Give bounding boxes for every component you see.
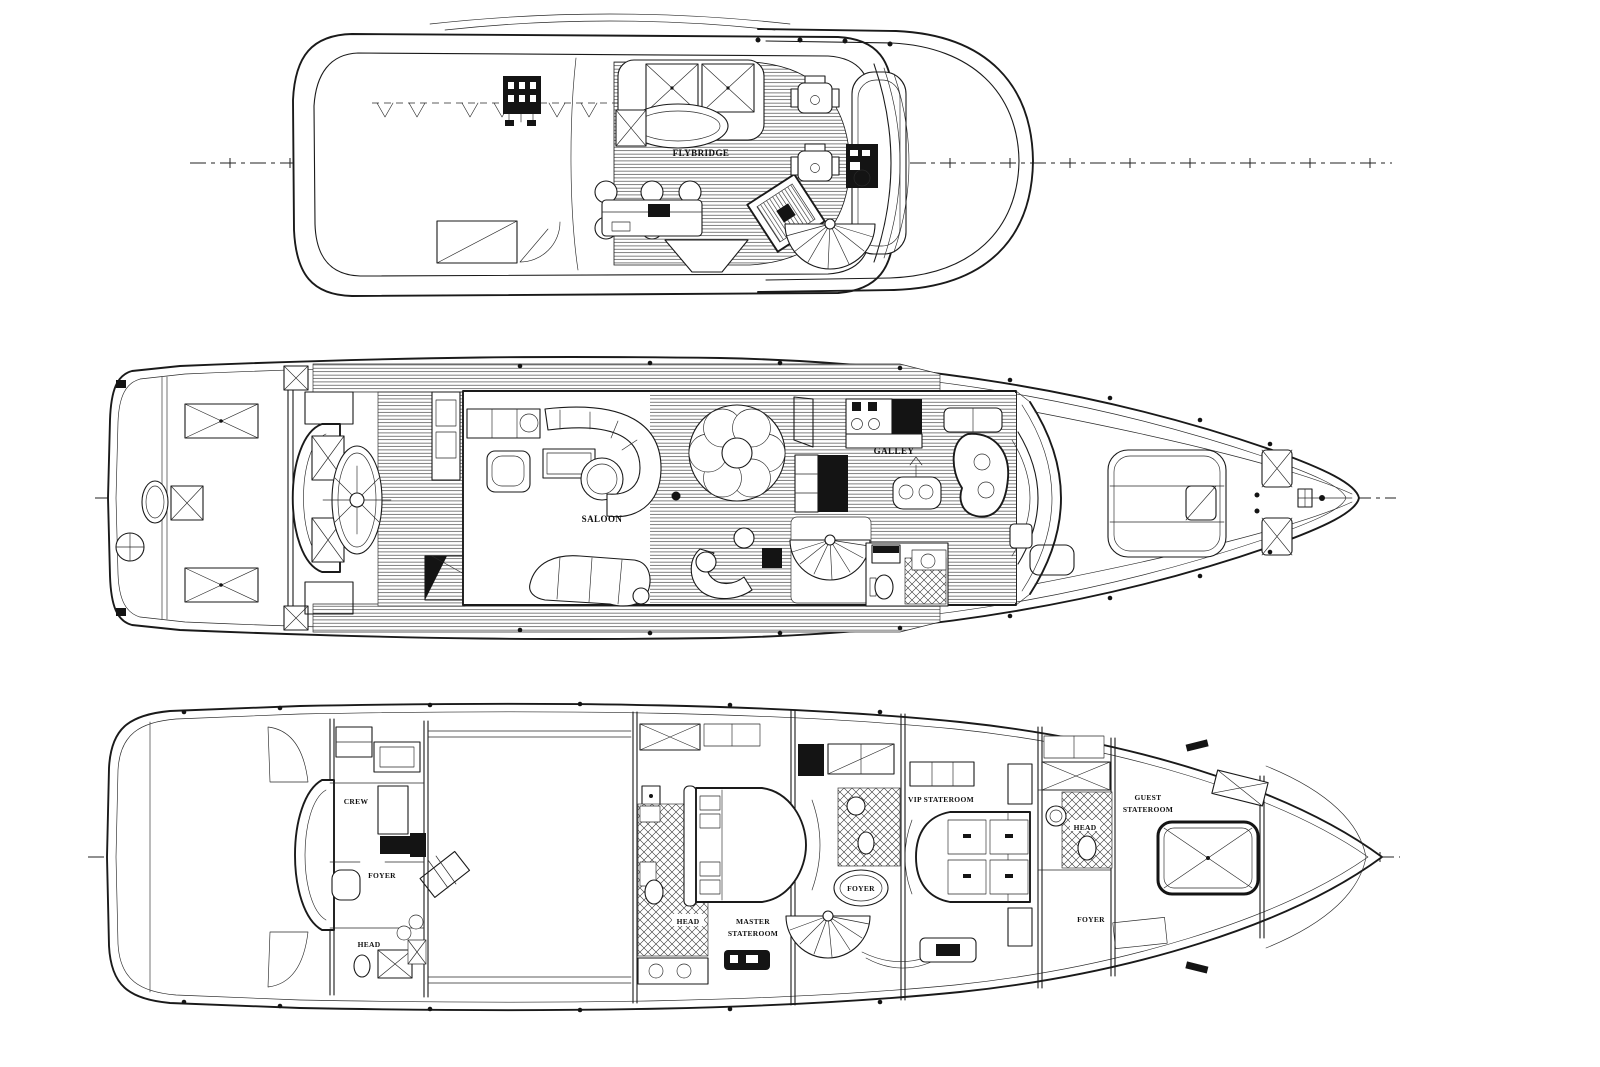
blueprint-canvas: FLYBRIDGE — [0, 0, 1600, 1067]
vip-head-label: HEAD — [1074, 823, 1097, 832]
vip-label: VIP STATEROOM — [908, 795, 974, 804]
dining-table — [689, 405, 785, 501]
master-headboard — [684, 786, 696, 906]
lower-deck-plan: CREW FOYER HEAD HEAD MASTER STATEROOM FO… — [88, 702, 1400, 1013]
main-deck-plan: SALOON GALLEY — [95, 357, 1396, 639]
guest-label-line2: STATEROOM — [1123, 805, 1173, 814]
crew-seat — [332, 870, 360, 900]
toilet — [858, 832, 874, 854]
wet-bar — [602, 200, 702, 236]
master-label-line2: STATEROOM — [728, 929, 778, 938]
flybridge-deck-plan: FLYBRIDGE — [190, 14, 1392, 296]
toilet — [875, 575, 893, 599]
master-vanity — [638, 958, 708, 984]
main-deck-stairs — [790, 517, 871, 603]
sink — [847, 797, 865, 815]
saloon-label: SALOON — [582, 514, 623, 524]
day-head — [866, 543, 948, 606]
washer-dryer — [798, 744, 824, 776]
side-deck-starboard — [313, 604, 940, 632]
guest-label-line1: GUEST — [1135, 793, 1162, 802]
center-foyer-label: FOYER — [847, 884, 875, 893]
deck-plans-drawing: FLYBRIDGE — [0, 0, 1600, 1067]
flybridge-settee — [616, 60, 764, 148]
toilet — [354, 955, 370, 977]
pedestal-sink — [1046, 806, 1066, 826]
crew-foyer-label: FOYER — [368, 871, 396, 880]
side-deck-port — [313, 364, 940, 392]
crew-label: CREW — [344, 797, 369, 806]
head-floor — [838, 788, 900, 866]
flybridge-label: FLYBRIDGE — [673, 148, 730, 158]
toilet — [1078, 836, 1096, 860]
crew-head-label: HEAD — [358, 940, 381, 949]
guest-foyer-label: FOYER — [1077, 915, 1105, 924]
galley-label: GALLEY — [874, 446, 915, 456]
toilet — [645, 880, 663, 904]
master-label-line1: MASTER — [736, 917, 770, 926]
breakfast-bar — [954, 434, 1009, 517]
master-head-label: HEAD — [677, 917, 700, 926]
